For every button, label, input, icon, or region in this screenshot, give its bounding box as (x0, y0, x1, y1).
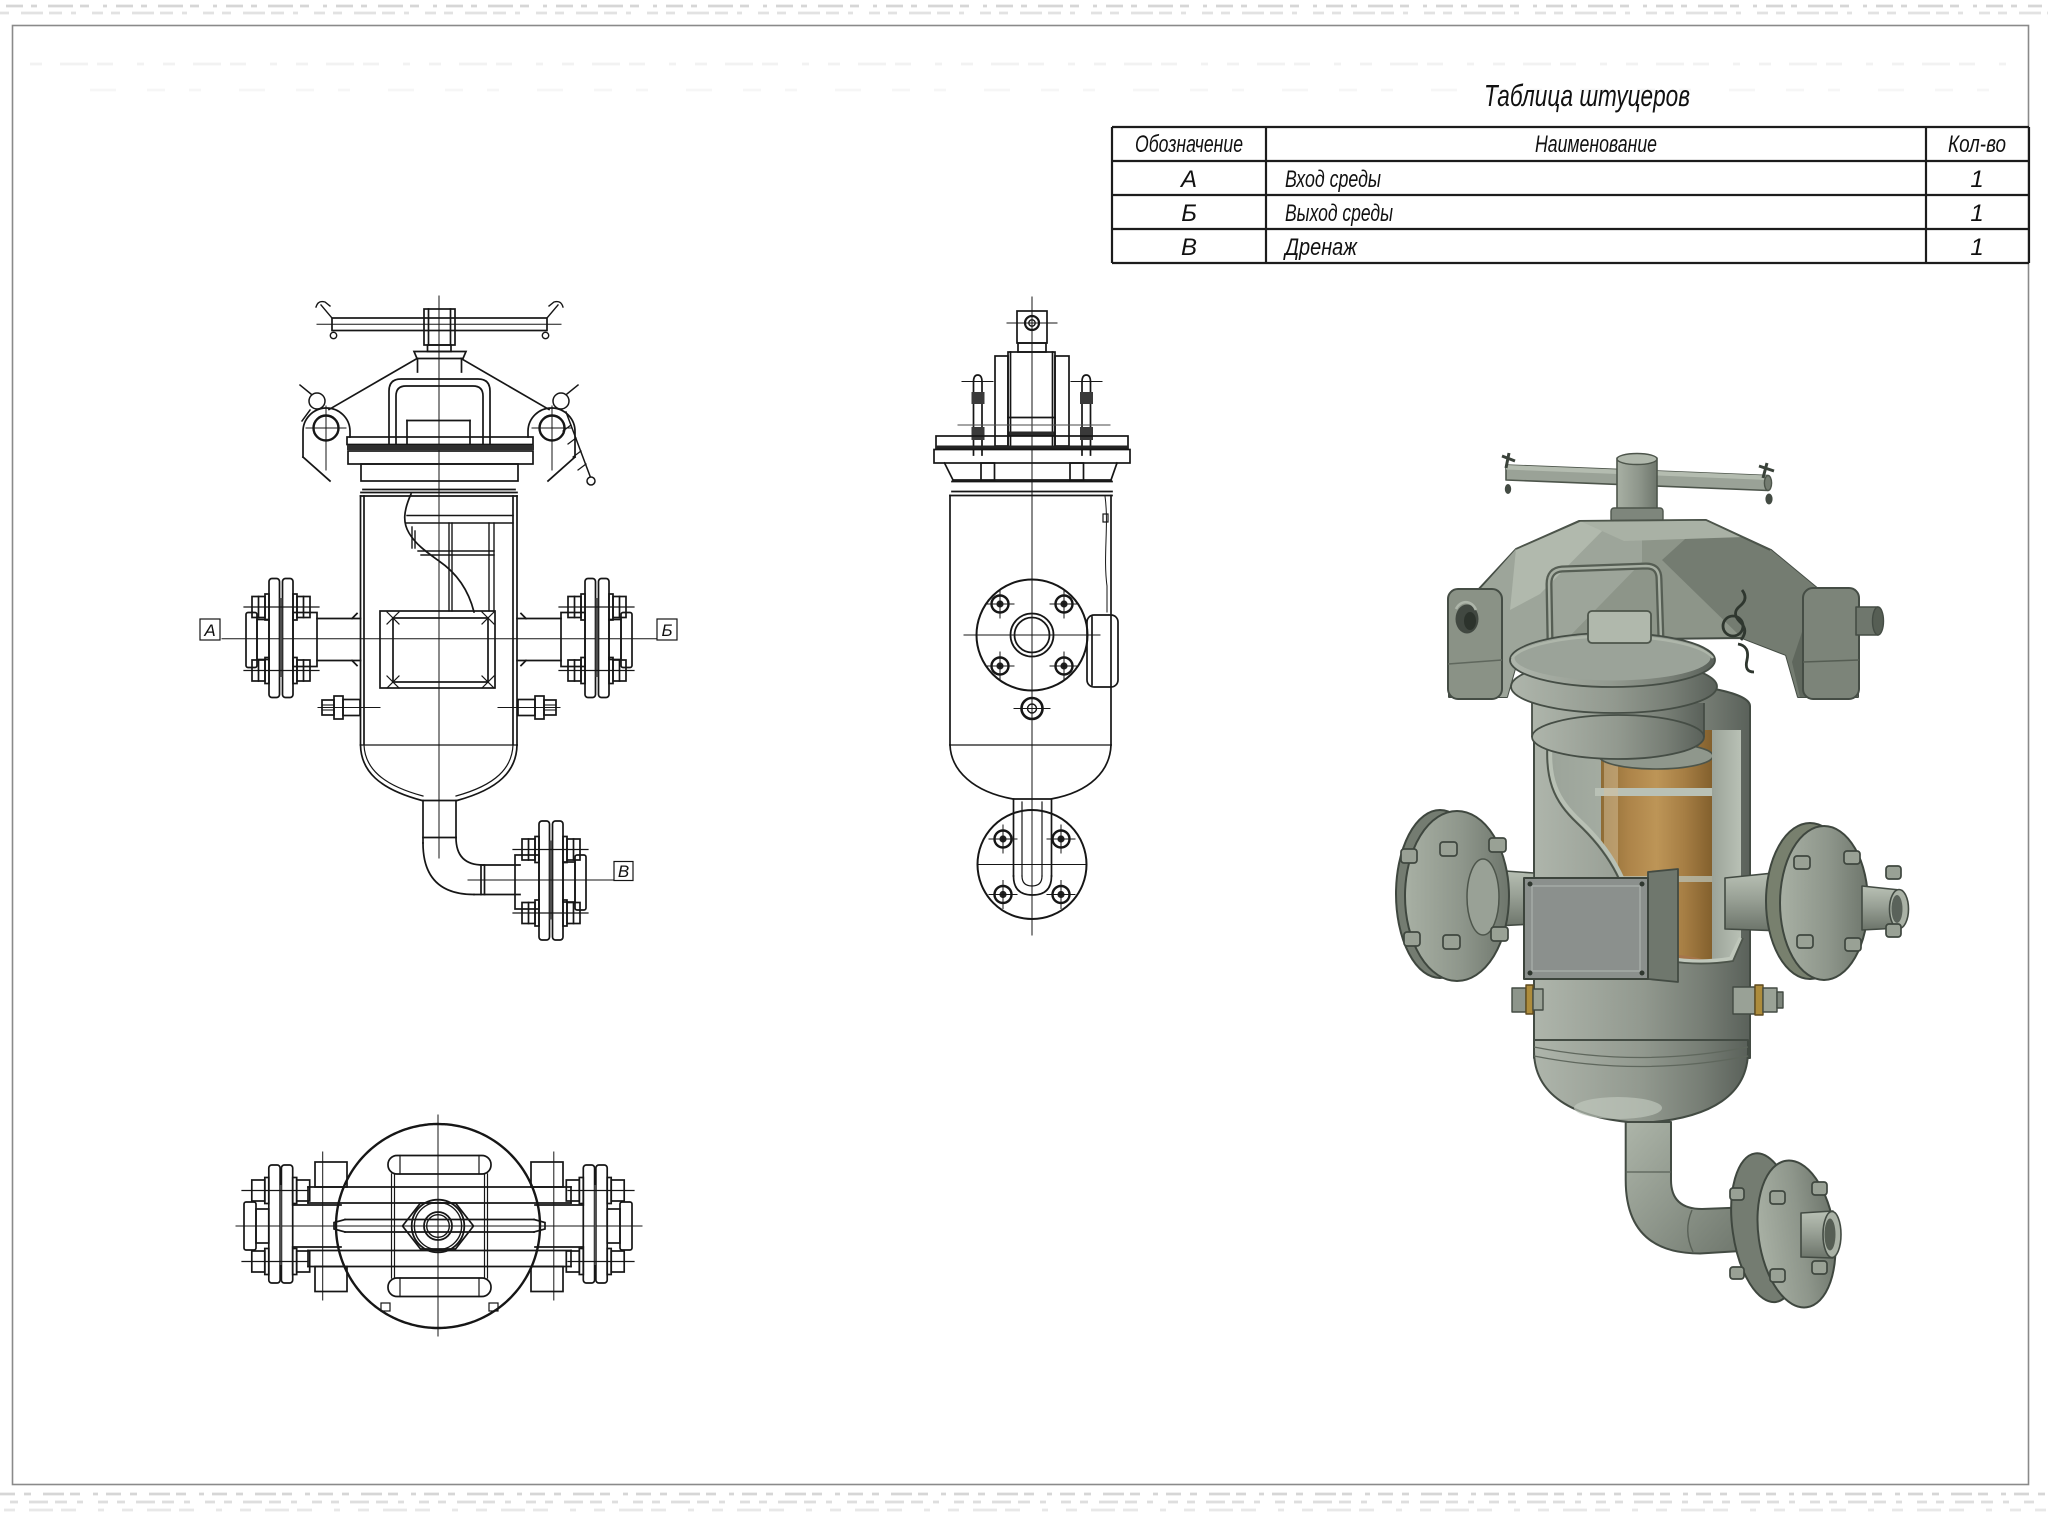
svg-text:Кол-во: Кол-во (1948, 131, 2006, 158)
svg-text:А: А (1179, 166, 1197, 193)
svg-text:Б: Б (661, 621, 672, 640)
svg-text:Вход среды: Вход среды (1285, 166, 1381, 193)
svg-text:А: А (203, 621, 215, 640)
svg-text:Обозначение: Обозначение (1135, 131, 1243, 158)
svg-text:Таблица штуцеров: Таблица штуцеров (1484, 78, 1690, 113)
svg-text:Б: Б (1181, 200, 1197, 227)
svg-text:1: 1 (1970, 234, 1983, 261)
svg-text:1: 1 (1970, 200, 1983, 227)
svg-text:1: 1 (1970, 166, 1983, 193)
svg-text:Дренаж: Дренаж (1283, 234, 1359, 261)
svg-text:Наименование: Наименование (1535, 131, 1657, 158)
svg-text:Выход среды: Выход среды (1285, 200, 1393, 227)
svg-text:В: В (1181, 234, 1197, 261)
svg-text:В: В (618, 862, 629, 881)
